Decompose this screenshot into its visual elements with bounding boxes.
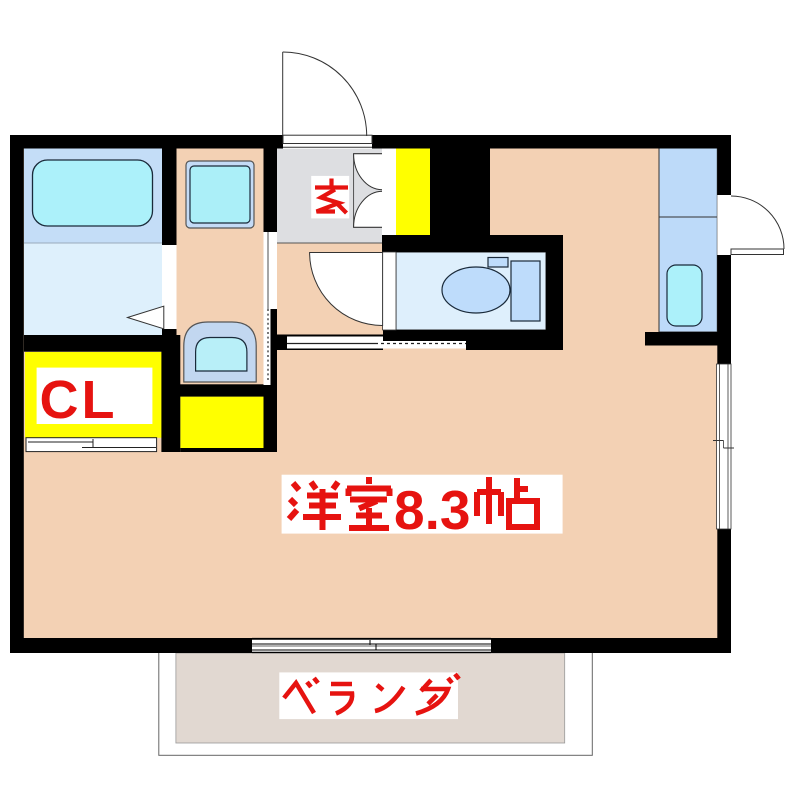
svg-text:CL: CL — [40, 370, 118, 430]
svg-text:8.3: 8.3 — [394, 479, 470, 541]
